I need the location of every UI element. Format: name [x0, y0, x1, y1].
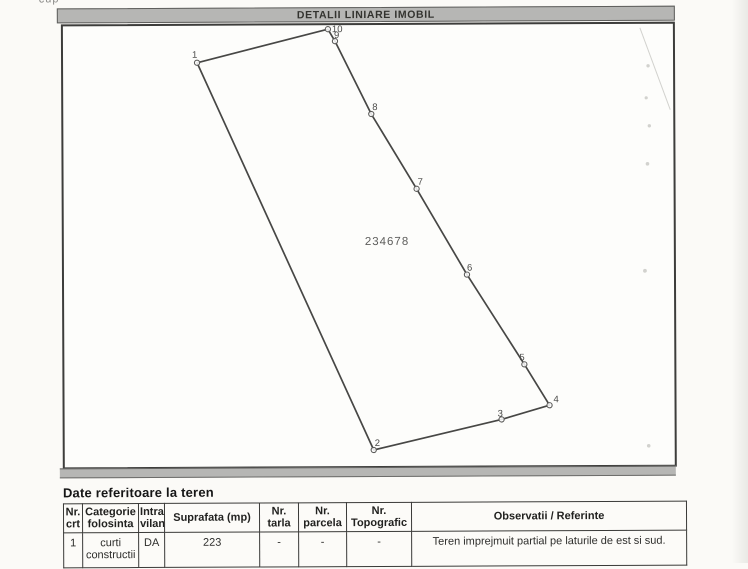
scan-artifact-speck	[647, 65, 649, 67]
cell-categorie: curti constructii	[83, 533, 139, 568]
vertex-label-2: 2	[375, 438, 380, 449]
vertex-label-1: 1	[192, 50, 197, 61]
scan-artifact-line	[640, 28, 670, 110]
cell-tarla: -	[260, 532, 299, 567]
section-title: Date referitoare la teren	[63, 485, 214, 501]
cutoff-text-fragment: cup	[39, 0, 60, 6]
table-header-row: Nr. crt Categorie folosinta Intra vilan …	[63, 501, 686, 533]
scan-artifact-speck	[648, 125, 650, 127]
col-header-suprafata: Suprafata (mp)	[164, 503, 259, 532]
parcel-number-label: 234678	[365, 236, 409, 248]
vertex-marker-4	[547, 403, 552, 408]
vertex-label-8: 8	[372, 102, 377, 113]
cell-suprafata: 223	[165, 532, 260, 567]
vertex-label-5: 5	[519, 352, 524, 363]
scan-artifact-speck	[647, 444, 650, 447]
cell-topografic: -	[347, 531, 412, 566]
col-header-categorie: Categorie folosinta	[82, 504, 138, 533]
vertex-label-4: 4	[553, 394, 558, 405]
cell-observatii: Teren imprejmuit partial pe laturile de …	[412, 530, 687, 566]
scan-artifact-speck	[645, 97, 647, 99]
page-edge-shadow	[732, 0, 748, 563]
col-header-tarla: Nr. tarla	[259, 503, 298, 532]
col-header-parcela: Nr. parcela	[298, 503, 346, 532]
parcel-svg: 11098765432 234678	[63, 24, 675, 468]
table-row: 1 curti constructii DA 223 - - - Teren i…	[64, 530, 687, 568]
scanned-page: cup DETALII LINIARE IMOBIL 11098765432 2…	[0, 0, 748, 565]
col-header-observatii: Observatii / Referinte	[411, 501, 686, 531]
parcel-drawing-frame: 11098765432 234678	[61, 22, 677, 470]
vertex-marker-1	[194, 60, 199, 65]
col-header-topografic: Nr. Topografic	[346, 502, 411, 531]
land-data-table: Nr. crt Categorie folosinta Intra vilan …	[63, 501, 687, 569]
detail-title-bar: DETALII LINIARE IMOBIL	[57, 6, 675, 24]
frame-bottom-bar	[60, 466, 676, 479]
scan-artifact-speck	[646, 162, 649, 165]
cell-intravilan: DA	[139, 532, 165, 567]
scan-artifact-speck	[644, 269, 647, 272]
vertex-marker-10	[325, 27, 330, 32]
col-header-nr-crt: Nr. crt	[63, 504, 82, 533]
page-title: DETALII LINIARE IMOBIL	[297, 8, 435, 21]
vertex-label-7: 7	[418, 177, 423, 188]
vertex-label-9: 9	[334, 30, 339, 41]
col-header-intravilan: Intra vilan	[138, 503, 164, 532]
cell-parcela: -	[299, 532, 347, 567]
vertex-label-6: 6	[467, 263, 472, 274]
vertex-label-3: 3	[498, 408, 503, 419]
